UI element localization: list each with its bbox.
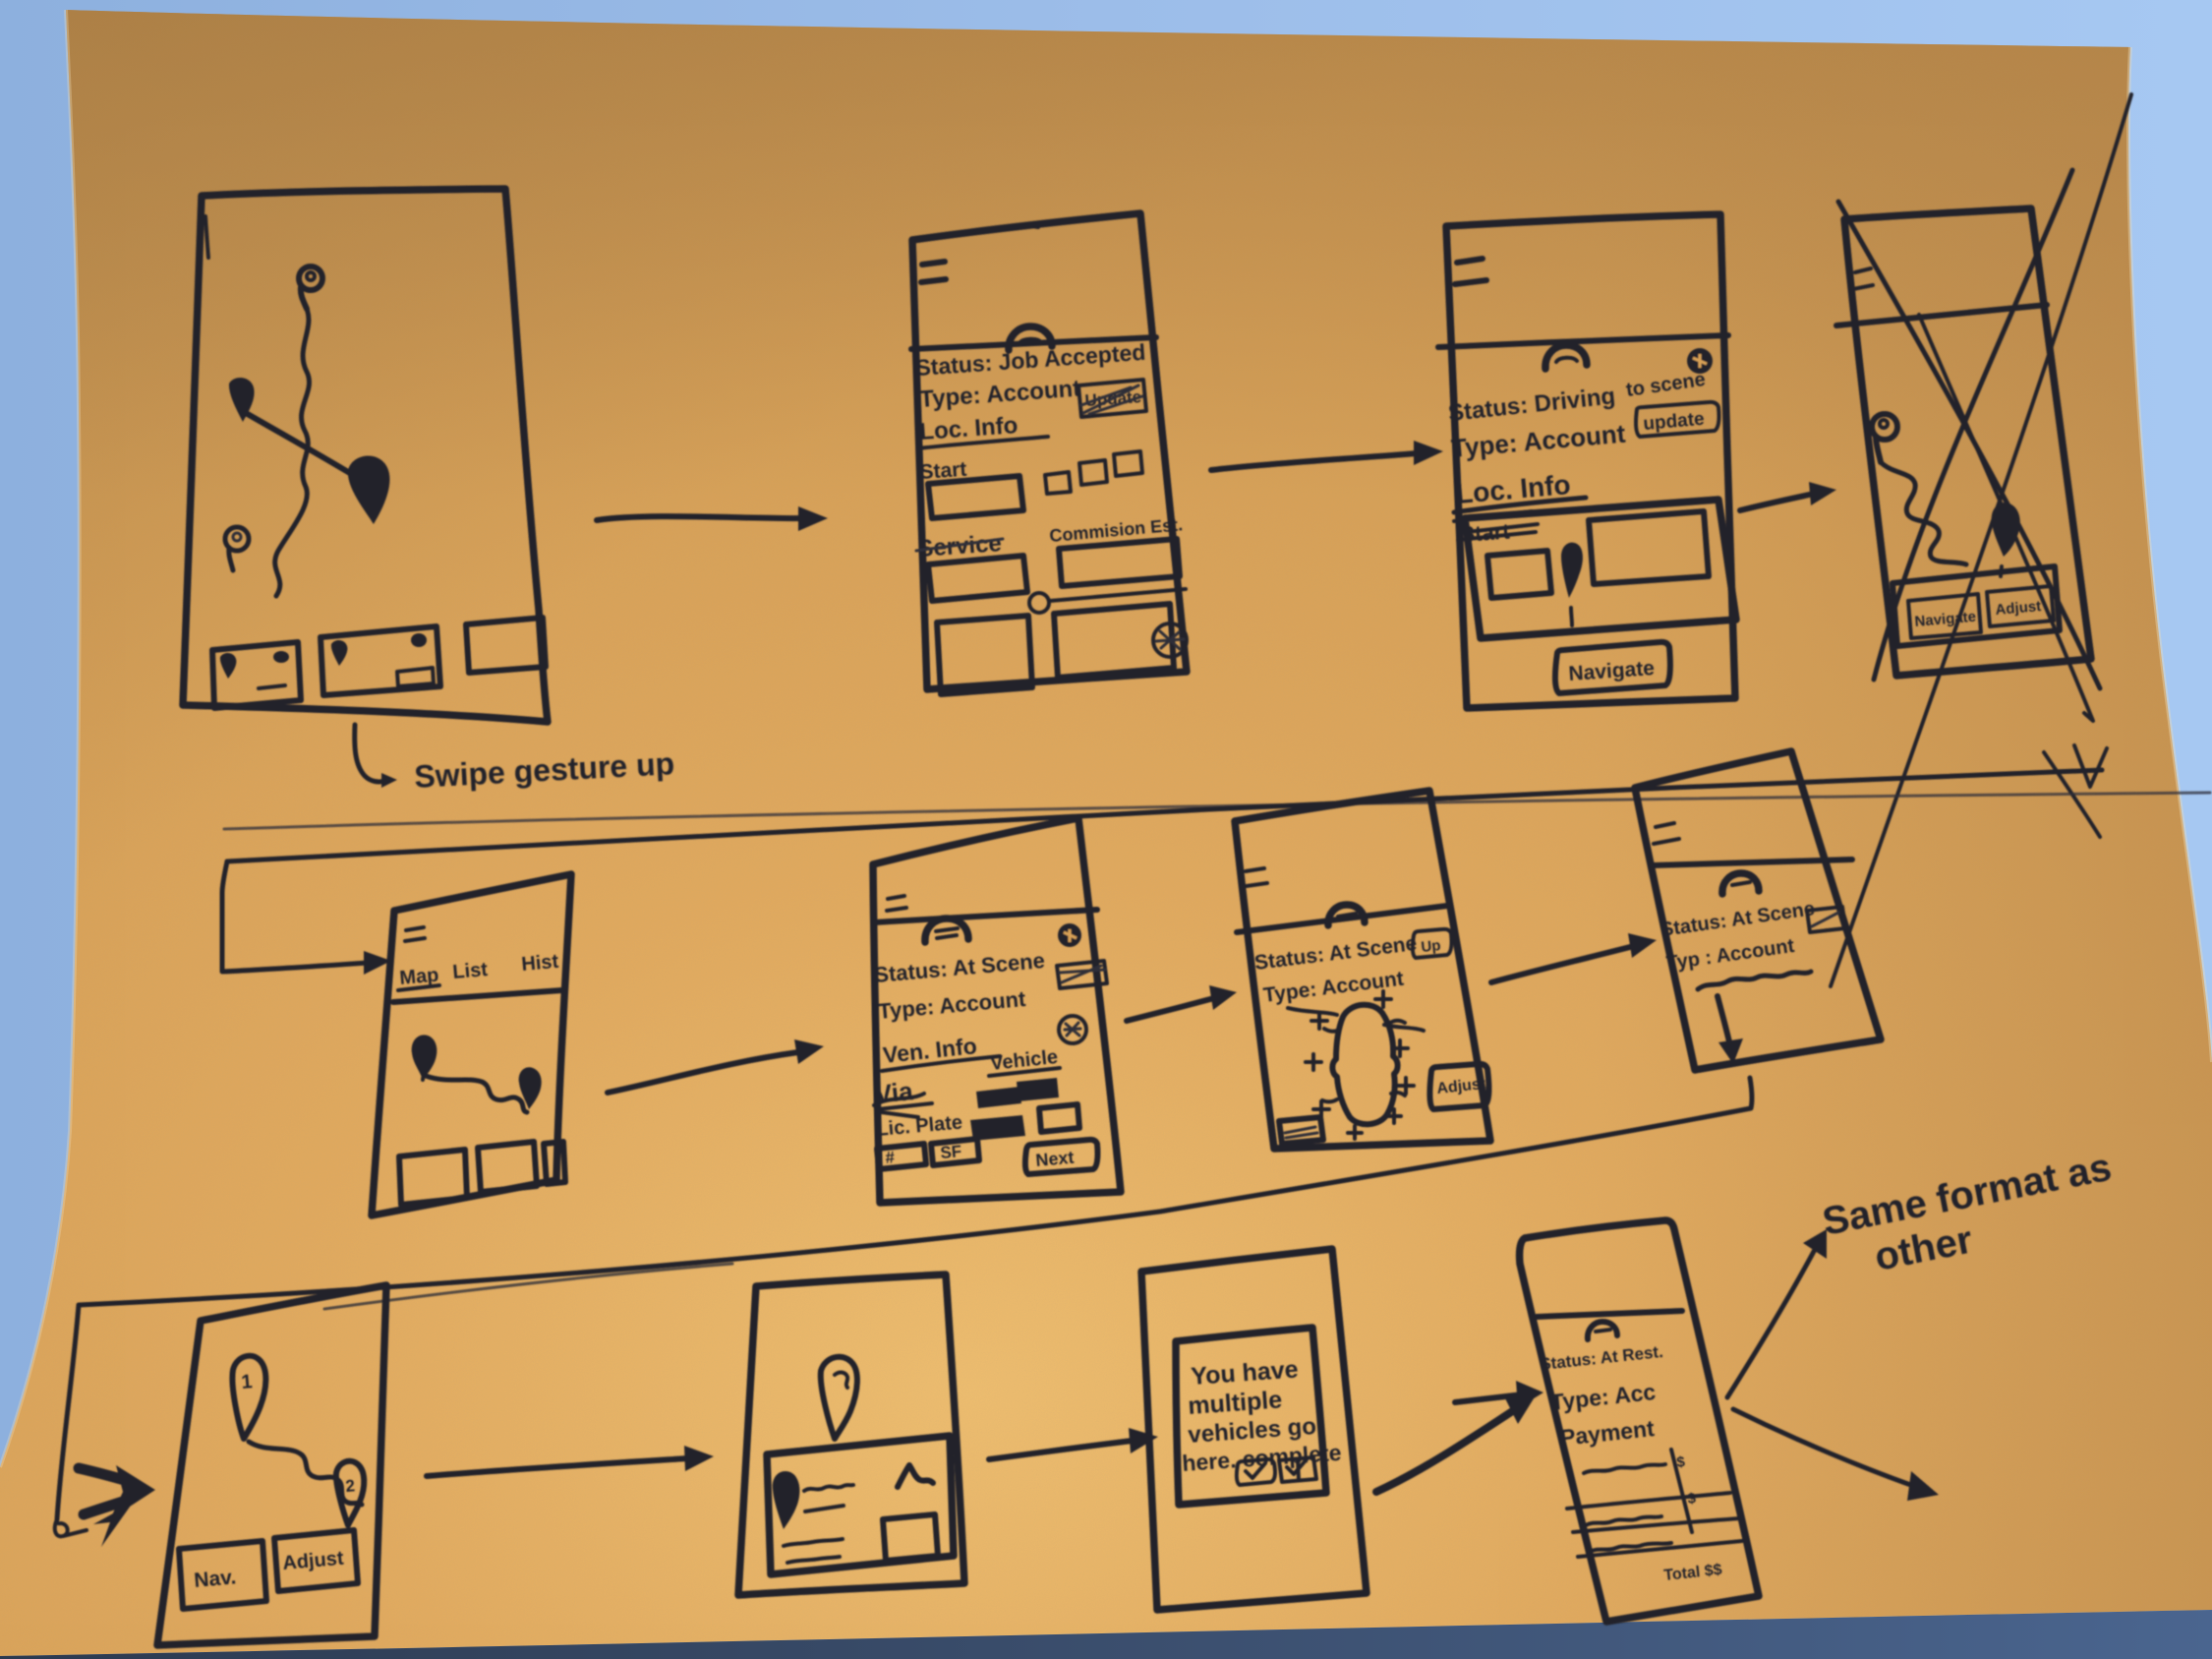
svg-text:2: 2 xyxy=(345,1476,356,1496)
svg-text:SF: SF xyxy=(940,1142,962,1162)
svg-text:Hist: Hist xyxy=(521,951,560,976)
svg-text:1: 1 xyxy=(241,1371,254,1393)
svg-text:List: List xyxy=(452,959,490,983)
svg-text:Up: Up xyxy=(1421,937,1442,956)
svg-text:Next: Next xyxy=(1035,1148,1076,1170)
svg-text:Nav.: Nav. xyxy=(193,1566,237,1592)
